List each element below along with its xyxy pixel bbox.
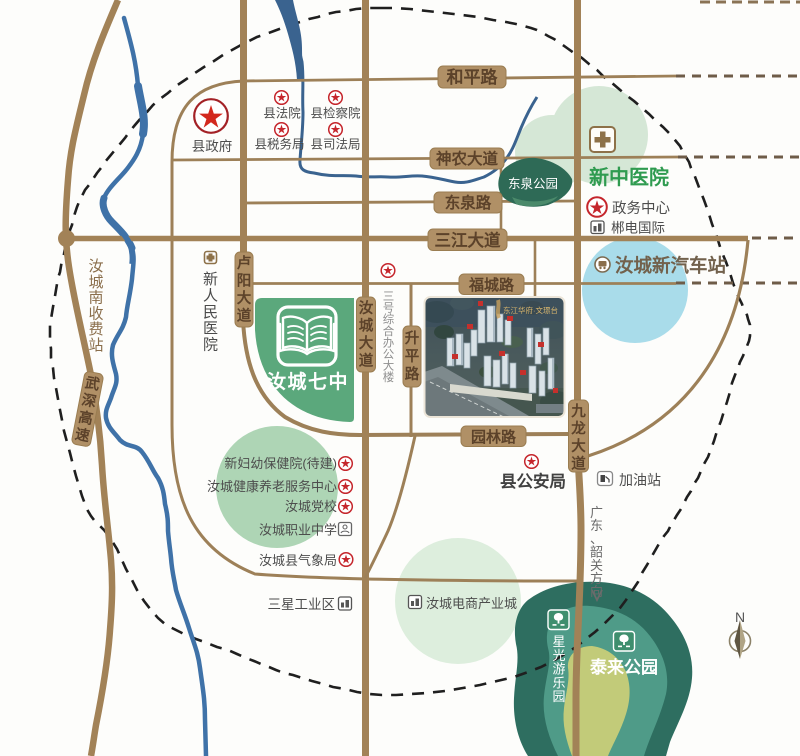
svg-text:三江大道: 三江大道 [435, 230, 502, 250]
svg-text:神农大道: 神农大道 [436, 149, 499, 168]
svg-text:汝城健康养老服务中心: 汝城健康养老服务中心 [207, 479, 337, 494]
svg-text:汝城电商产业城: 汝城电商产业城 [426, 596, 517, 611]
svg-text:县税务局: 县税务局 [254, 137, 304, 152]
svg-text:汝城新汽车站: 汝城新汽车站 [615, 255, 727, 276]
svg-text:县检察院: 县检察院 [310, 106, 361, 121]
svg-text:县法院: 县法院 [263, 107, 301, 121]
svg-text:汝城七中: 汝城七中 [267, 370, 349, 393]
svg-text:县公安局: 县公安局 [500, 471, 566, 491]
svg-text:汝城职业中学: 汝城职业中学 [259, 523, 337, 538]
svg-text:加油站: 加油站 [619, 472, 661, 488]
svg-text:东泉公园: 东泉公园 [508, 176, 558, 191]
svg-text:和平路: 和平路 [447, 67, 499, 87]
svg-text:县司法局: 县司法局 [310, 138, 360, 152]
svg-text:东泉路: 东泉路 [445, 193, 492, 212]
svg-text:三号综合办公大楼: 三号综合办公大楼 [383, 291, 395, 384]
svg-text:郴电国际: 郴电国际 [611, 221, 665, 236]
svg-text:福城路: 福城路 [468, 276, 515, 294]
svg-text:九龙大道: 九龙大道 [570, 402, 586, 473]
svg-text:星光游乐园: 星光游乐园 [552, 634, 565, 704]
svg-text:东江华府·文璟台: 东江华府·文璟台 [503, 305, 558, 315]
svg-text:汝城大道: 汝城大道 [359, 299, 374, 370]
svg-text:卢阳大道: 卢阳大道 [237, 254, 252, 325]
svg-text:县政府: 县政府 [192, 139, 233, 154]
svg-text:汝城党校: 汝城党校 [285, 499, 337, 514]
svg-text:园林路: 园林路 [471, 428, 517, 446]
svg-text:三星工业区: 三星工业区 [268, 597, 336, 612]
svg-text:汝城南收费站: 汝城南收费站 [88, 258, 103, 354]
svg-text:政务中心: 政务中心 [612, 200, 670, 217]
svg-text:泰来公园: 泰来公园 [590, 657, 658, 677]
svg-text:升平路: 升平路 [405, 330, 420, 383]
svg-text:广东、韶关方向: 广东、韶关方向 [590, 505, 603, 599]
svg-text:新妇幼保健院(待建): 新妇幼保健院(待建) [224, 456, 337, 471]
svg-text:汝城县气象局: 汝城县气象局 [259, 553, 337, 568]
svg-text:新人民医院: 新人民医院 [203, 271, 218, 354]
svg-text:新中医院: 新中医院 [589, 165, 669, 189]
